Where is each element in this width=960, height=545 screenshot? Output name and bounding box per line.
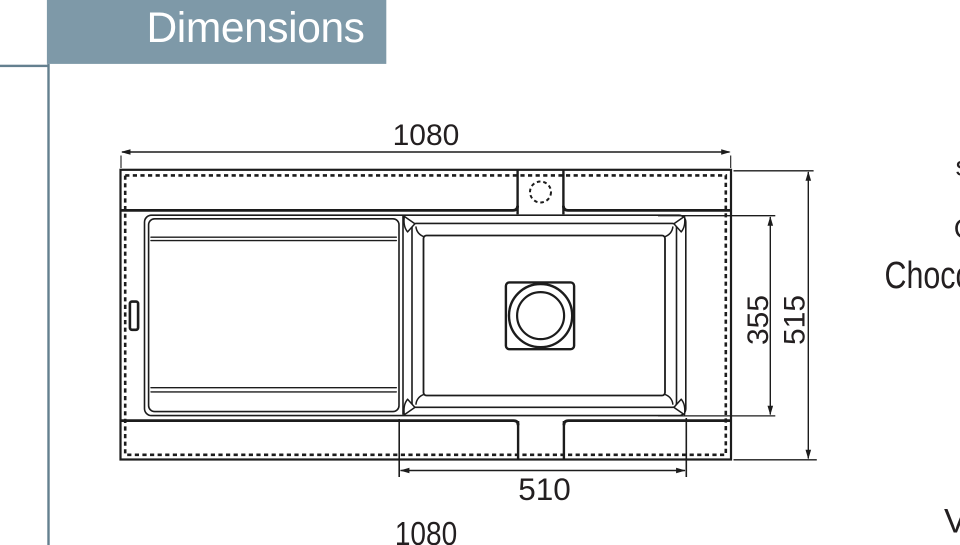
svg-text:Chocolate: Chocolate	[885, 255, 960, 297]
svg-text:1080: 1080	[395, 516, 457, 545]
svg-text:515: 515	[779, 295, 812, 345]
svg-text:s: s	[956, 151, 960, 182]
svg-text:1080: 1080	[393, 119, 460, 152]
svg-text:510: 510	[518, 471, 571, 507]
svg-text:Dimensions: Dimensions	[147, 5, 365, 52]
svg-text:Coffee: Coffee	[954, 213, 960, 244]
svg-text:Vanilla: Vanilla	[944, 503, 960, 541]
svg-text:355: 355	[742, 295, 775, 345]
